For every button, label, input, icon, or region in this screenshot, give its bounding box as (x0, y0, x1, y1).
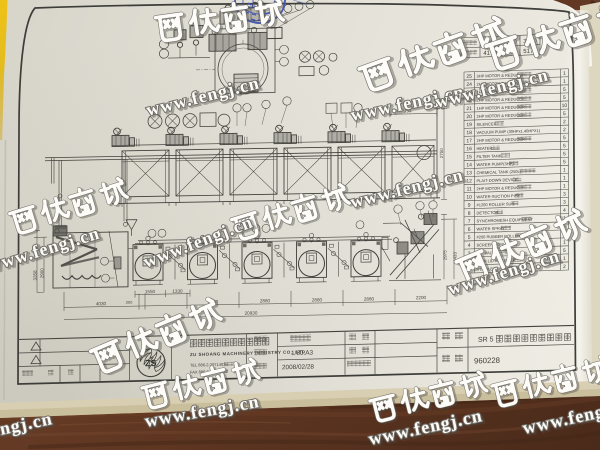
svg-text:960228: 960228 (474, 356, 500, 366)
svg-text:16: 16 (466, 146, 472, 152)
svg-text:1: 1 (563, 79, 566, 85)
svg-text:21: 21 (466, 106, 472, 112)
svg-text:13: 13 (466, 170, 472, 176)
svg-text:2: 2 (563, 119, 566, 125)
svg-text:2200: 2200 (416, 295, 427, 300)
svg-text:3: 3 (563, 192, 566, 198)
svg-text:14: 14 (466, 162, 472, 168)
svg-text:19: 19 (466, 122, 472, 128)
svg-text:4030: 4030 (96, 301, 107, 306)
svg-text:5: 5 (563, 143, 566, 149)
svg-text:5: 5 (563, 135, 566, 141)
svg-text:15: 15 (466, 154, 472, 160)
svg-text:9: 9 (468, 203, 471, 209)
svg-text:12: 12 (466, 178, 472, 184)
svg-text:ZS: ZS (145, 358, 157, 368)
svg-text:10: 10 (466, 194, 472, 200)
svg-text:300: 300 (126, 300, 133, 305)
svg-text:2880: 2880 (364, 296, 375, 301)
svg-text:5: 5 (563, 151, 566, 157)
svg-text:17: 17 (466, 138, 472, 144)
svg-text:4: 4 (563, 208, 566, 214)
svg-text:1/80.A3: 1/80.A3 (291, 350, 313, 358)
svg-text:5: 5 (563, 87, 566, 93)
svg-text:18: 18 (466, 130, 472, 136)
svg-text:4: 4 (468, 243, 471, 249)
svg-text:3358: 3358 (33, 270, 38, 281)
svg-text:5: 5 (563, 248, 566, 254)
svg-text:3: 3 (563, 200, 566, 206)
svg-text:2880: 2880 (260, 298, 271, 303)
svg-text:2: 2 (563, 127, 566, 133)
svg-text:2975: 2975 (443, 250, 448, 261)
svg-text:1550: 1550 (145, 289, 156, 294)
svg-text:SILENCER: SILENCER (477, 121, 497, 127)
svg-text:5: 5 (563, 95, 566, 101)
svg-text:5: 5 (468, 235, 471, 241)
svg-text:7: 7 (468, 219, 471, 225)
svg-text:1330: 1330 (172, 289, 183, 294)
svg-text:TEL 886-2-29714035: TEL 886-2-29714035 (190, 362, 228, 368)
svg-text:1: 1 (563, 167, 566, 173)
svg-text:1: 1 (563, 183, 566, 189)
svg-text:6: 6 (468, 227, 471, 233)
svg-text:2008/02/28: 2008/02/28 (282, 363, 314, 371)
svg-text:WATER SPRAY: WATER SPRAY (477, 226, 506, 232)
svg-text:1: 1 (563, 240, 566, 246)
svg-text:20930: 20930 (245, 310, 258, 315)
svg-text:25: 25 (466, 74, 472, 80)
svg-text:2900: 2900 (40, 268, 45, 279)
svg-text:2750: 2750 (439, 148, 444, 159)
svg-text:8: 8 (468, 211, 471, 217)
svg-text:1: 1 (563, 71, 566, 77)
svg-text:1: 1 (563, 256, 566, 262)
svg-text:2880: 2880 (312, 297, 323, 302)
svg-text:SR 5: SR 5 (478, 336, 494, 343)
svg-text:10: 10 (562, 103, 568, 109)
svg-text:5: 5 (563, 111, 566, 117)
svg-text:HEATER: HEATER (477, 146, 493, 152)
svg-text:11: 11 (467, 186, 472, 192)
svg-text:1: 1 (563, 175, 566, 181)
svg-text:FILTER TANK: FILTER TANK (477, 153, 502, 159)
svg-text:5: 5 (563, 159, 566, 165)
svg-text:20: 20 (466, 114, 472, 120)
